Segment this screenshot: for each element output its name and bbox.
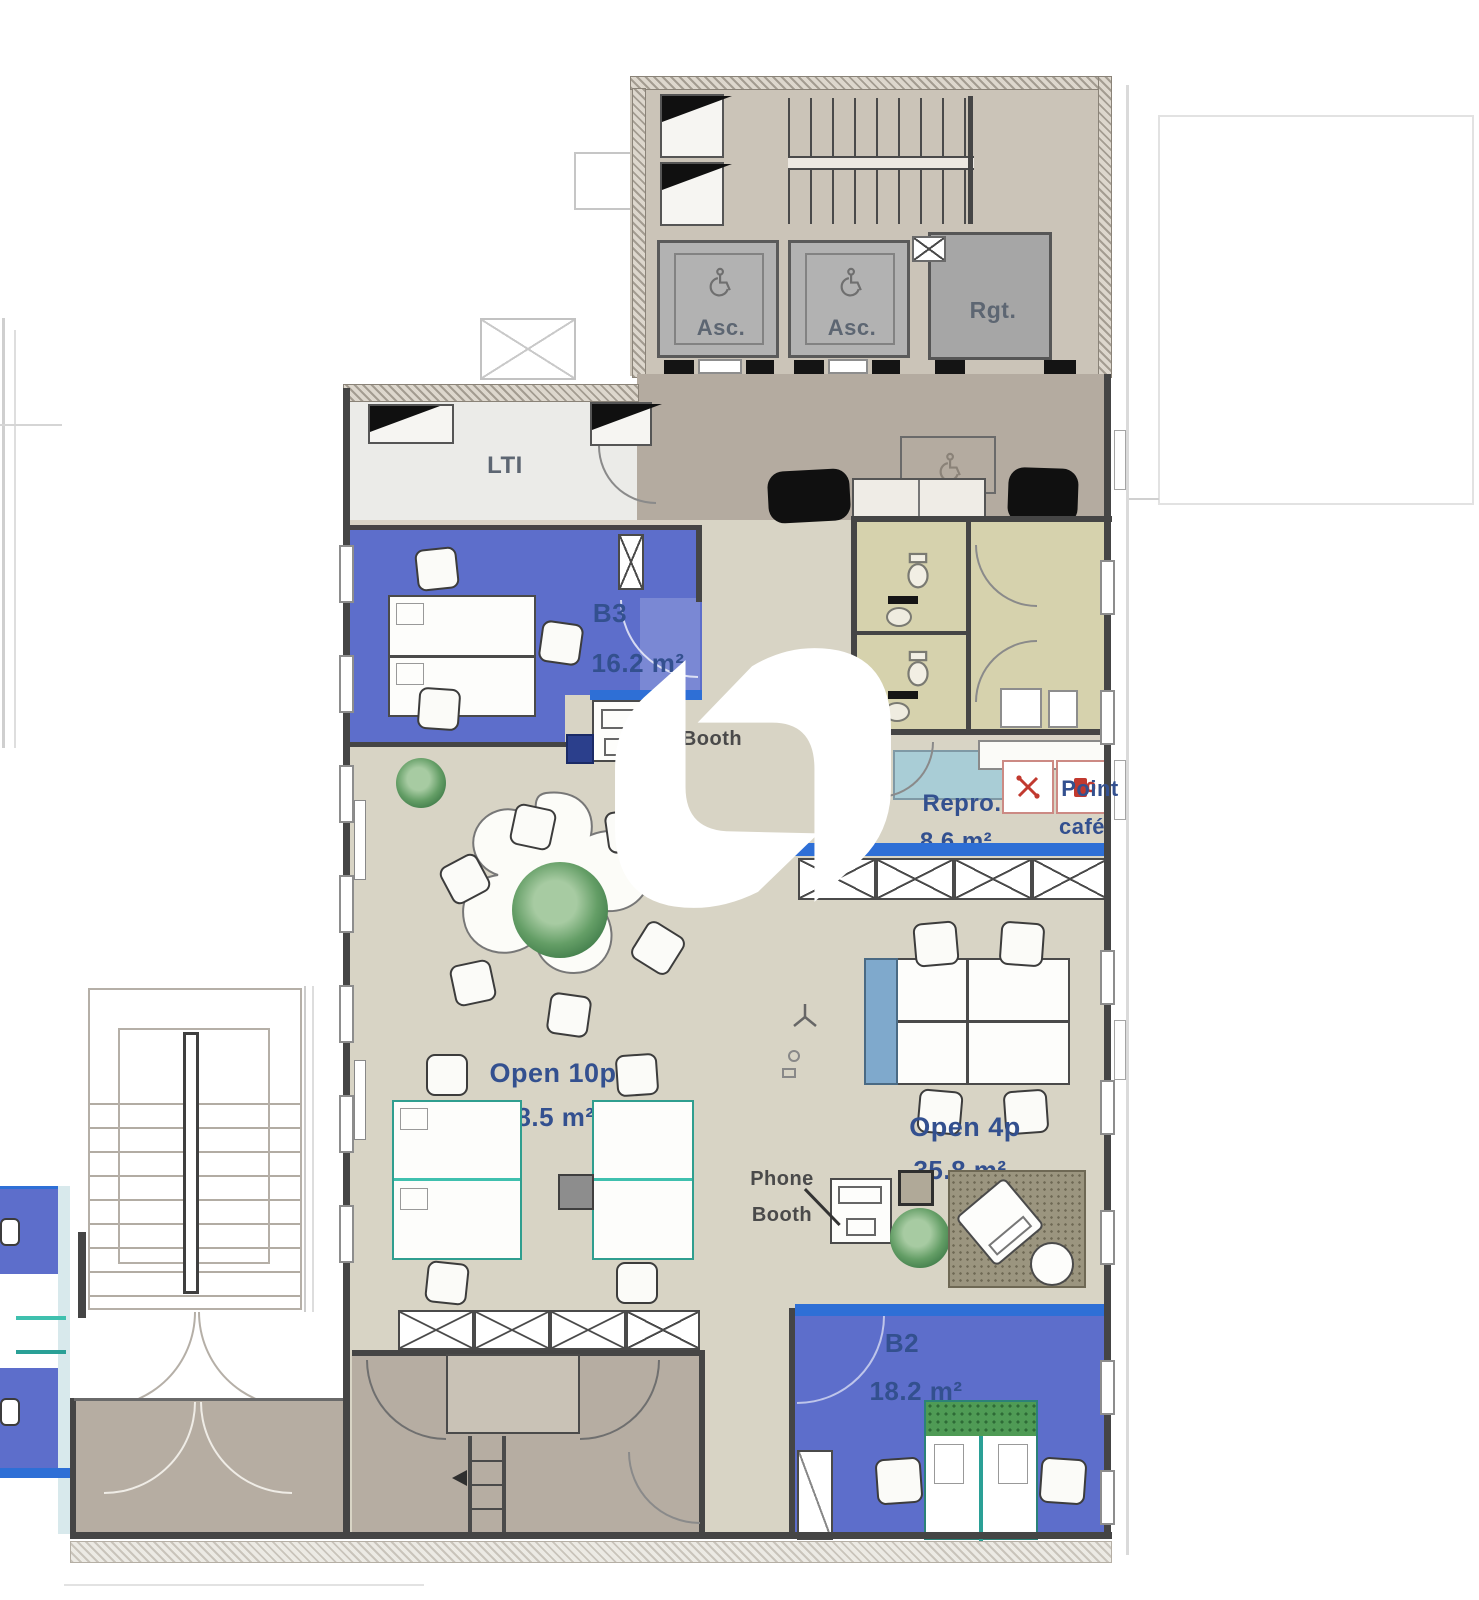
core-wall xyxy=(1098,76,1112,378)
chair-icon xyxy=(426,1054,468,1096)
plant-icon xyxy=(890,1208,950,1268)
desk-screen xyxy=(864,958,898,1085)
threshold xyxy=(1044,360,1076,374)
window xyxy=(339,985,354,1043)
wall xyxy=(345,742,567,747)
pedestal xyxy=(558,1174,594,1210)
context-wall xyxy=(1126,85,1129,1555)
desk-return xyxy=(400,1108,428,1130)
chair-icon xyxy=(537,619,584,666)
window xyxy=(1100,1360,1115,1415)
desk-divider xyxy=(394,1178,520,1181)
room-b3-label: B3 xyxy=(593,598,627,629)
elevator-2: Asc. xyxy=(788,240,910,358)
window xyxy=(1100,1210,1115,1265)
window xyxy=(339,545,354,603)
threshold xyxy=(698,359,742,374)
shaft-box xyxy=(912,236,946,262)
desk xyxy=(924,1400,1038,1540)
storage-cabinet xyxy=(1032,858,1108,900)
exterior-stairs xyxy=(88,988,302,1310)
open10-label: Open 10p xyxy=(489,1058,616,1089)
chair-icon xyxy=(414,546,460,592)
cafe-box xyxy=(1002,760,1054,814)
context-wall xyxy=(312,986,314,1312)
repro-label: Repro. xyxy=(922,790,1001,818)
pilaster xyxy=(1114,1020,1126,1080)
wheelchair-icon xyxy=(706,267,732,297)
wardrobe xyxy=(590,402,652,446)
chair-icon xyxy=(616,1262,658,1304)
point-cafe-label: café xyxy=(1059,814,1105,840)
open4-label: Open 4p xyxy=(909,1112,1021,1143)
desk-divider xyxy=(594,1178,692,1181)
window xyxy=(1100,560,1115,615)
plant-icon xyxy=(396,758,446,808)
storage-cabinet xyxy=(626,1310,700,1350)
toilet-icon xyxy=(903,552,933,590)
highlight-wall xyxy=(795,1304,1108,1316)
phone-booth xyxy=(830,1178,892,1244)
context-wall xyxy=(1129,498,1159,500)
desk-return xyxy=(396,603,424,625)
accessory-icon xyxy=(782,1068,796,1078)
chair-icon xyxy=(0,1398,20,1426)
pilaster xyxy=(1114,430,1126,490)
equipment-box xyxy=(566,734,594,764)
context-outline xyxy=(1158,115,1474,505)
window xyxy=(1100,1470,1115,1525)
window xyxy=(1100,950,1115,1005)
chair-icon xyxy=(999,921,1046,968)
desk-return xyxy=(400,1188,428,1210)
window xyxy=(339,1205,354,1263)
chair-icon xyxy=(508,802,558,852)
chair-icon xyxy=(1038,1456,1087,1505)
highlight-wall xyxy=(0,1468,70,1478)
stair-tread xyxy=(468,1484,506,1486)
booth-seat xyxy=(838,1186,882,1204)
wall xyxy=(70,1532,1112,1539)
window xyxy=(1100,690,1115,745)
context-wall xyxy=(14,330,16,748)
desk-divider xyxy=(979,1436,983,1542)
chair-icon xyxy=(448,958,498,1008)
room-rgt-label: Rgt. xyxy=(970,297,1017,324)
duct-panel xyxy=(660,162,724,226)
wall xyxy=(855,631,968,635)
storage-cabinet xyxy=(398,1310,474,1350)
sink-icon xyxy=(886,607,912,627)
point-cafe-label: Point xyxy=(1061,776,1119,802)
radiator xyxy=(354,800,366,880)
threshold xyxy=(664,360,694,374)
core-wall xyxy=(630,76,1112,90)
elevator-label: Asc. xyxy=(828,315,876,341)
context-wall xyxy=(304,986,306,1312)
context-shaft xyxy=(480,318,576,380)
context-outline xyxy=(574,152,636,210)
threshold xyxy=(794,360,824,374)
radiator xyxy=(354,1060,366,1140)
threshold xyxy=(935,360,965,374)
window xyxy=(339,765,354,823)
phone-booth-label: Phone xyxy=(750,1168,814,1191)
desk-return xyxy=(998,1444,1028,1484)
threshold xyxy=(828,359,868,374)
desk xyxy=(592,1100,694,1260)
window xyxy=(339,875,354,933)
chair-icon xyxy=(417,687,462,732)
chair-icon xyxy=(615,1053,660,1098)
wall xyxy=(78,1232,86,1318)
elevator-1: Asc. xyxy=(657,240,779,358)
shelf-accent xyxy=(16,1350,66,1354)
desk-return xyxy=(396,663,424,685)
context-wall xyxy=(2,318,5,748)
chair-icon xyxy=(912,920,960,968)
chair-icon xyxy=(874,1456,923,1505)
wall xyxy=(968,96,973,224)
phone-booth-label: Booth xyxy=(752,1204,812,1227)
chair-icon xyxy=(545,991,592,1038)
toilet-icon xyxy=(903,650,933,688)
wc-fixture xyxy=(1048,690,1078,728)
plant-icon xyxy=(512,862,608,958)
wall xyxy=(966,520,971,732)
threshold xyxy=(872,360,900,374)
sink-counter xyxy=(888,596,918,604)
chair-icon xyxy=(0,1218,20,1246)
wall xyxy=(70,1398,76,1534)
cabinet xyxy=(797,1450,833,1540)
storage-cabinet xyxy=(474,1310,550,1350)
floor-plan: Asc. Asc. Rgt. LTI xyxy=(0,0,1479,1600)
room-b2-label: B2 xyxy=(885,1328,919,1359)
planter-box xyxy=(898,1170,934,1206)
neighbor-strip xyxy=(58,1186,70,1534)
bench-seat xyxy=(767,468,852,524)
desk-divider xyxy=(966,960,969,1083)
elevator-label: Asc. xyxy=(697,315,745,341)
stair-tread xyxy=(468,1508,506,1510)
chair-icon xyxy=(424,1260,470,1306)
service-counter xyxy=(446,1354,580,1434)
wall xyxy=(74,1398,344,1401)
wardrobe xyxy=(368,404,454,444)
desk xyxy=(388,595,536,717)
stair-tread xyxy=(468,1460,506,1462)
coat-stand-icon xyxy=(790,1002,820,1032)
window xyxy=(339,655,354,713)
door-arc xyxy=(100,1312,196,1408)
room-lti-label: LTI xyxy=(487,452,523,480)
storage-cabinet xyxy=(954,858,1032,900)
desk-plant-strip xyxy=(926,1402,1036,1436)
logo-watermark xyxy=(598,636,906,918)
stair-rail xyxy=(183,1032,199,1294)
duct-panel xyxy=(660,94,724,158)
divider xyxy=(918,480,920,518)
door-arc xyxy=(198,1312,294,1408)
column xyxy=(618,534,644,590)
context-wall xyxy=(0,424,62,426)
desk-divider xyxy=(390,655,534,658)
wc-fixture xyxy=(1000,688,1042,728)
facade-band xyxy=(70,1541,1112,1563)
desk-return xyxy=(934,1444,964,1484)
accessory-icon xyxy=(788,1050,800,1062)
storage-cabinet xyxy=(550,1310,626,1350)
desk xyxy=(392,1100,522,1260)
wall xyxy=(343,384,639,402)
context-wall xyxy=(64,1584,424,1586)
wheelchair-icon xyxy=(837,267,863,297)
wall xyxy=(345,525,702,530)
cutlery-icon xyxy=(1013,772,1043,802)
booth-table xyxy=(846,1218,876,1236)
window xyxy=(339,1095,354,1153)
core-wall xyxy=(632,88,646,378)
window xyxy=(1100,1080,1115,1135)
shelf-accent xyxy=(16,1316,66,1320)
direction-arrow-icon xyxy=(452,1470,467,1486)
console-table xyxy=(852,478,986,520)
wall xyxy=(696,530,702,602)
threshold xyxy=(746,360,774,374)
side-table xyxy=(1030,1242,1074,1286)
room-rgt: Rgt. xyxy=(928,232,1052,360)
wall xyxy=(851,516,1112,522)
stair-landing xyxy=(788,156,974,170)
wall xyxy=(789,1308,795,1534)
